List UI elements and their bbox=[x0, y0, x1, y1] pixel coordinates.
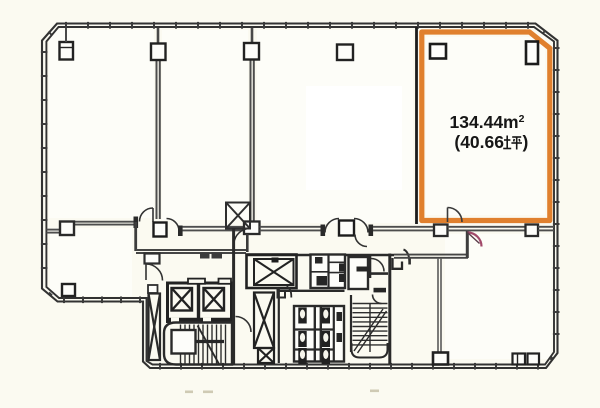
svg-text:(40.66: (40.66 bbox=[454, 132, 504, 152]
svg-text:134.44m2: 134.44m2 bbox=[450, 112, 525, 132]
svg-text:): ) bbox=[523, 132, 529, 152]
